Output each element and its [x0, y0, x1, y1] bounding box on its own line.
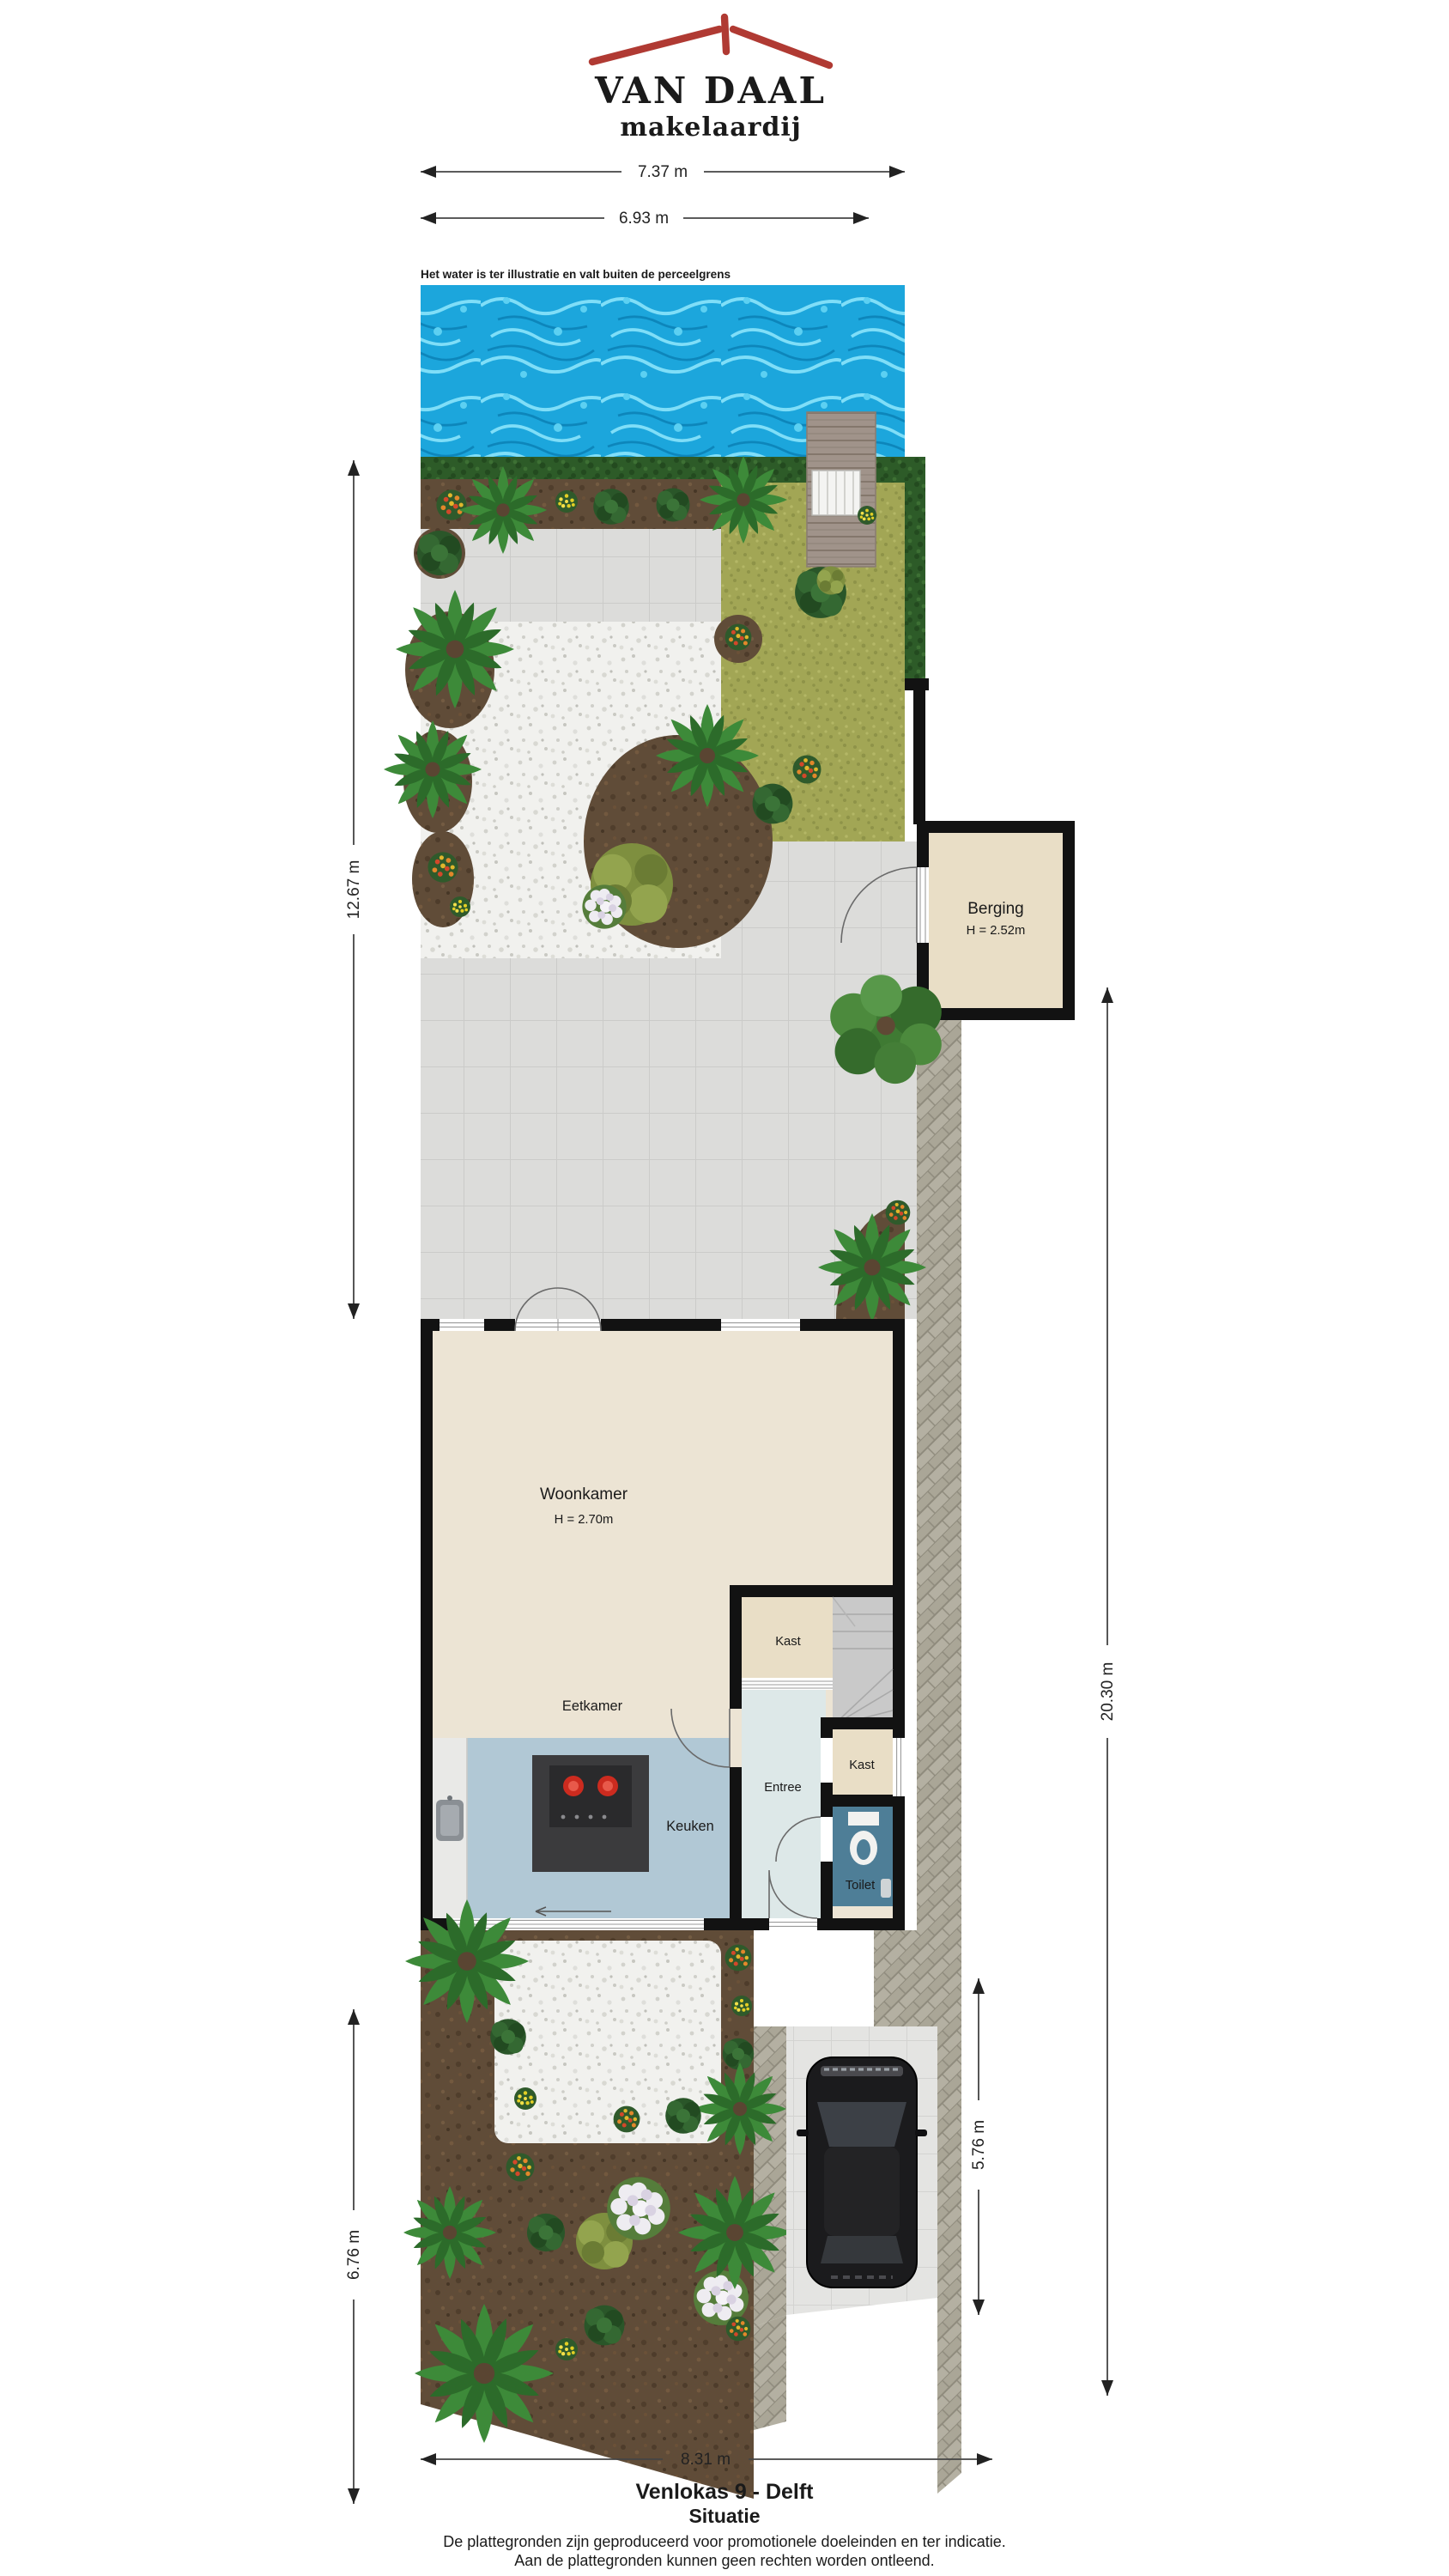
dimension-garden-left-label: 12.67 m	[345, 860, 363, 920]
garden-wall-2	[913, 683, 925, 824]
hedge-row-right	[876, 457, 905, 483]
toilet-label: Toilet	[846, 1879, 876, 1893]
berging-height-label: H = 2.52m	[967, 924, 1026, 938]
kitchen-island	[532, 1755, 649, 1872]
woonkamer-height-label: H = 2.70m	[555, 1513, 614, 1527]
kast-lower-label: Kast	[849, 1759, 875, 1772]
wooden-deck	[807, 412, 876, 567]
dimension-plot-right-label: 20.30 m	[1099, 1662, 1117, 1722]
floorplan-page: VAN DAAL makelaardij 7.37 m 6.93 m Het w…	[0, 0, 1449, 2576]
logo-subtitle: makelaardij	[620, 112, 801, 143]
dimension-top-inner-label: 6.93 m	[619, 210, 669, 228]
dimension-top-outer: 7.37 m	[421, 163, 905, 181]
eetkamer-label: Eetkamer	[562, 1698, 623, 1714]
entree-label: Entree	[764, 1781, 802, 1795]
agency-logo: VAN DAAL makelaardij	[592, 17, 829, 143]
water-disclaimer: Het water is ter illustratie en valt bui…	[421, 268, 731, 281]
plan-subtitle: Situatie	[688, 2505, 760, 2527]
dimension-front-left: 6.76 m	[345, 2009, 363, 2504]
terrace-tiles-upper	[421, 529, 721, 622]
dimension-front-left-label: 6.76 m	[345, 2230, 363, 2280]
deck-steps	[812, 471, 860, 515]
plan-footer: Venlokas 9 - Delft Situatie De plattegro…	[443, 2480, 1005, 2569]
dimension-bottom: 8.31 m	[421, 2451, 992, 2469]
keuken-label: Keuken	[666, 1819, 714, 1834]
kitchen-sink	[436, 1795, 464, 1841]
berging-label: Berging	[967, 900, 1024, 918]
dimension-top-outer-label: 7.37 m	[638, 163, 688, 181]
plan-title: Venlokas 9 - Delft	[635, 2480, 814, 2504]
kast-partition	[742, 1678, 833, 1690]
dimension-bottom-label: 8.31 m	[681, 2451, 731, 2469]
logo-title: VAN DAAL	[594, 70, 827, 112]
car	[797, 2057, 927, 2287]
dimension-top-inner: 6.93 m	[421, 210, 869, 228]
dimension-parking-right: 5.76 m	[970, 1978, 988, 2315]
plan-disclaimer-2: Aan de plattegronden kunnen geen rechten…	[514, 2552, 934, 2569]
entree-floor	[742, 1690, 826, 1918]
staircase	[833, 1597, 893, 1726]
berging-floor	[929, 833, 1063, 1008]
logo-roof-icon	[592, 17, 829, 65]
dimension-plot-right: 20.30 m	[1099, 987, 1117, 2396]
plan-disclaimer-1: De plattegronden zijn geproduceerd voor …	[443, 2533, 1005, 2550]
window-top-left	[440, 1319, 484, 1331]
woonkamer-label: Woonkamer	[540, 1485, 628, 1504]
dimension-garden-left: 12.67 m	[345, 460, 363, 1319]
hedge-column	[905, 457, 925, 687]
window-top-right	[721, 1319, 800, 1331]
kast-upper-label: Kast	[775, 1635, 801, 1649]
house: Woonkamer H = 2.70m Eetkamer Kast Entree…	[421, 1288, 905, 1941]
dimension-parking-right-label: 5.76 m	[970, 2120, 988, 2170]
situatie-plan: VAN DAAL makelaardij 7.37 m 6.93 m Het w…	[0, 0, 1449, 2576]
window-right	[893, 1738, 905, 1796]
front-garden	[403, 1899, 791, 2499]
